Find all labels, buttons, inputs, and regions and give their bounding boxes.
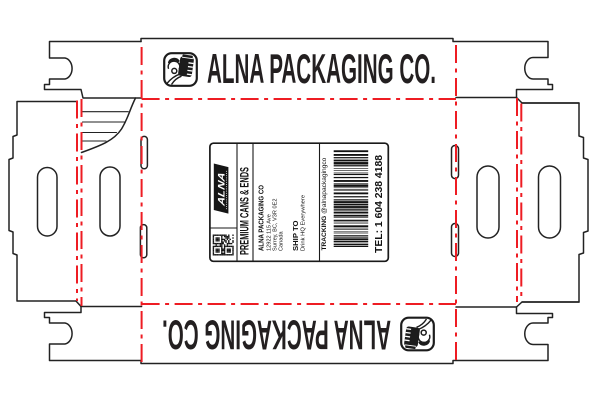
svg-text:ALNA PACKAGING CO.: ALNA PACKAGING CO. bbox=[162, 312, 391, 359]
svg-text:Canada: Canada bbox=[279, 231, 285, 251]
svg-text:TRACKING @alnapackagingco: TRACKING @alnapackagingco bbox=[321, 157, 328, 250]
svg-text:TEL: 1 604 238 4188: TEL: 1 604 238 4188 bbox=[374, 155, 385, 253]
svg-text:PREMIUM CANS & ENDS: PREMIUM CANS & ENDS bbox=[239, 167, 251, 255]
svg-text:12922 115 Ave: 12922 115 Ave bbox=[266, 214, 272, 251]
svg-text:Drink HQ Everywhere: Drink HQ Everywhere bbox=[301, 195, 307, 251]
svg-text:ALNA PACKAGING CO.: ALNA PACKAGING CO. bbox=[207, 45, 436, 92]
svg-text:ALNA: ALNA bbox=[217, 171, 228, 208]
svg-text:ALNA PACKAGING CO: ALNA PACKAGING CO bbox=[256, 185, 265, 251]
svg-text:SHIP TO: SHIP TO bbox=[291, 221, 300, 251]
